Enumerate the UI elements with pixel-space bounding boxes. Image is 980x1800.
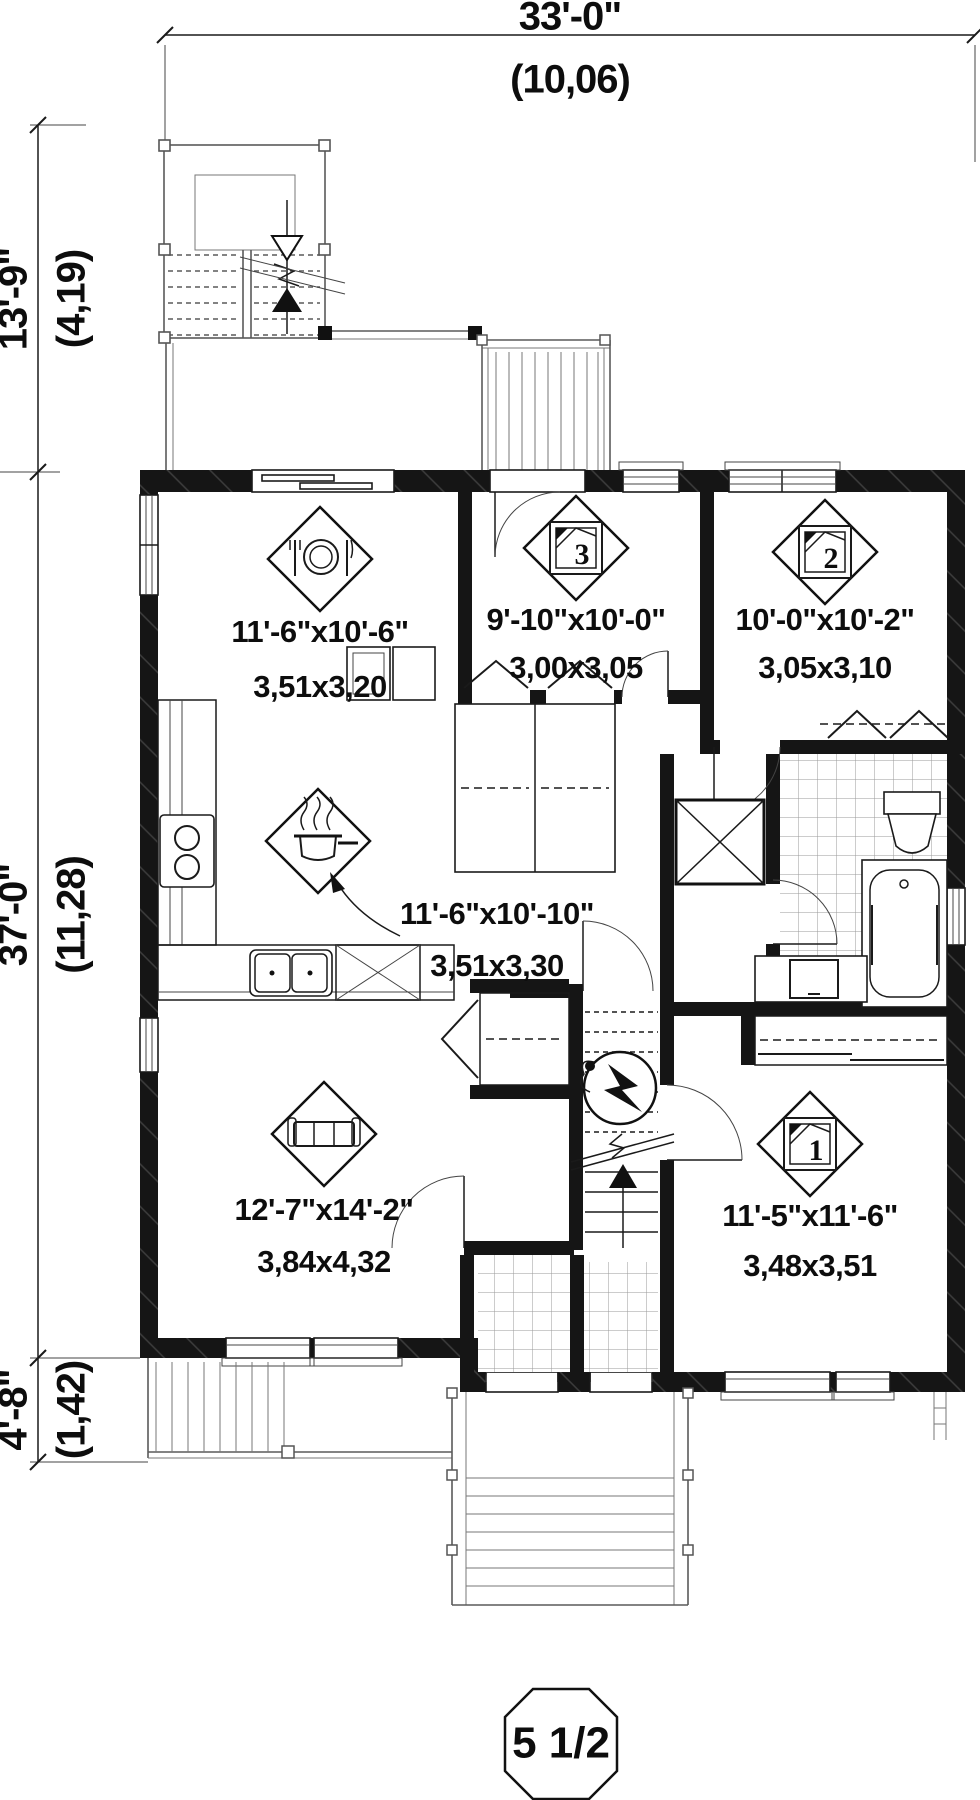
dimension-left: 13'-9" (4,19) 37'-0" (11,28) 4'-8" (1,42… <box>0 117 148 1470</box>
dim-left-main-metric: (11,28) <box>50 856 94 974</box>
kitchen-size-metric: 3,51x3,30 <box>430 948 563 983</box>
dimension-top: 33'-0" (10,06) <box>157 0 980 162</box>
back-exterior-staircase <box>159 140 345 470</box>
smoke-detector-icon <box>581 1052 656 1124</box>
dining-size-imperial: 11'-6"x10'-6" <box>231 614 408 649</box>
vestibule-right <box>584 1262 658 1372</box>
bedroom2-size-metric: 3,05x3,10 <box>758 650 891 685</box>
bedroom1-size-metric: 3,48x3,51 <box>743 1248 877 1283</box>
bathroom-vanity-sink-icon <box>755 956 867 1002</box>
dim-left-lower-imperial: 4'-8" <box>0 1369 36 1450</box>
stove-icon <box>160 815 214 887</box>
sofa-icon <box>272 1082 376 1186</box>
back-walkway-railing <box>318 326 482 340</box>
bedroom1-size-imperial: 11'-5"x11'-6" <box>722 1198 898 1233</box>
bedroom1-closet <box>755 1016 947 1065</box>
stair-break-line <box>571 1134 674 1170</box>
bathroom <box>755 754 947 1007</box>
stair-direction-arrows-icon <box>240 200 345 334</box>
stair-top-door <box>583 921 653 991</box>
dim-left-upper-imperial: 13'-9" <box>0 248 36 351</box>
bed-icon-3: 3 <box>524 496 628 600</box>
dining-size-metric: 3,51x3,20 <box>253 669 386 704</box>
side-step-right <box>934 1392 946 1440</box>
cooking-pot-icon <box>266 789 370 893</box>
bed-icon-2: 2 <box>773 500 877 604</box>
stairs-up-arrow-icon <box>609 1164 637 1248</box>
bed-number: 2 <box>824 542 839 575</box>
bed-number: 3 <box>575 538 590 571</box>
plan-number-octagon: 5 1/2 <box>505 1689 617 1799</box>
kitchen-sink-icon <box>250 950 332 996</box>
kitchen-size-imperial: 11'-6"x10'-10" <box>400 896 594 931</box>
dim-top-metric: (10,06) <box>510 58 630 102</box>
dim-top-imperial: 33'-0" <box>519 0 622 39</box>
bathtub-icon <box>862 860 947 1007</box>
bed-icon-1: 1 <box>758 1092 862 1196</box>
bedroom2-size-imperial: 10'-0"x10'-2" <box>736 602 915 637</box>
floor-plan-sheet: 33'-0" (10,06) 13'-9" (4,19) 37'-0" (11,… <box>0 0 980 1800</box>
bedroom1-door <box>667 1085 742 1160</box>
living-size-imperial: 12'-7"x14'-2" <box>235 1192 414 1227</box>
dining-place-setting-icon <box>268 507 372 611</box>
bed-number: 1 <box>809 1134 824 1167</box>
bifold-door-icon <box>442 1000 478 1078</box>
front-steps <box>447 1388 693 1605</box>
linen-closet <box>676 800 764 884</box>
front-porch <box>148 1358 452 1458</box>
bedroom3-size-imperial: 9'-10"x10'-0" <box>487 602 666 637</box>
plan-number: 5 1/2 <box>512 1719 610 1768</box>
dim-left-lower-metric: (1,42) <box>50 1361 94 1460</box>
bedroom3-size-metric: 3,00x3,05 <box>509 650 643 685</box>
central-staircase <box>571 921 674 1248</box>
dim-left-upper-metric: (4,19) <box>50 250 94 349</box>
living-size-metric: 3,84x4,32 <box>257 1244 390 1279</box>
coat-closet <box>442 993 569 1085</box>
kitchen-label-arrow <box>330 872 400 936</box>
bedroom2-closet <box>820 711 948 738</box>
back-deck <box>477 335 610 470</box>
dim-left-main-imperial: 37'-0" <box>0 864 36 967</box>
